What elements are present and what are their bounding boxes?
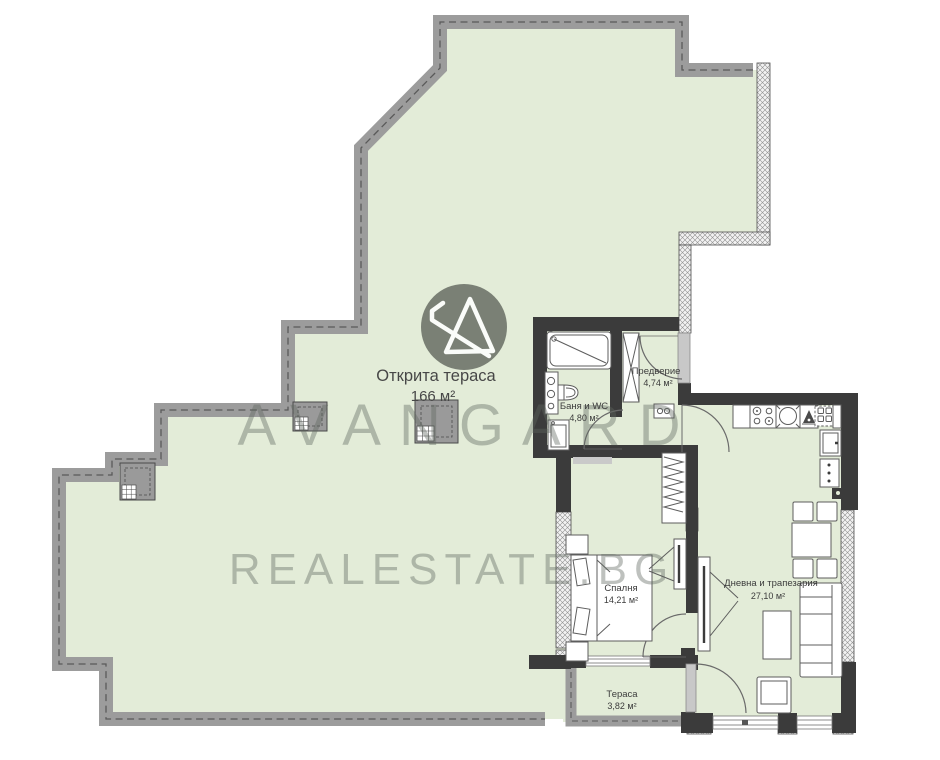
floor-plan-image: AVANGARD REALESTATE.BG Открита тераса 16… xyxy=(0,0,940,760)
living-top-wall xyxy=(679,393,858,405)
bedroom-label: Спалня xyxy=(604,583,637,594)
column-shaft xyxy=(120,463,155,500)
hallway-area: 4,74 м² xyxy=(643,378,672,388)
coffee-table-icon xyxy=(763,611,791,659)
bath-bottom-window xyxy=(573,457,612,464)
nightstand-icon xyxy=(566,642,588,661)
living-area: 27,10 м² xyxy=(751,591,785,601)
chair-icon xyxy=(817,559,837,578)
terrace-area-label: 3,82 м² xyxy=(607,701,636,711)
bathroom-area: 4,80 м² xyxy=(569,413,598,423)
terrace-label: Тераса xyxy=(606,689,638,700)
bedroom-wardrobe-icon xyxy=(662,453,686,523)
kitchen-cabinet-icon xyxy=(820,459,839,487)
chair-icon xyxy=(817,502,837,521)
chair-icon xyxy=(793,559,813,578)
brand-logo xyxy=(421,284,507,370)
bedroom-window xyxy=(586,656,650,666)
armchair-icon xyxy=(757,677,791,713)
sofa-icon xyxy=(800,583,842,677)
open-terrace-label: Открита тераса xyxy=(376,367,496,385)
floor-plan-page: AVANGARD REALESTATE.BG Открита тераса 16… xyxy=(0,0,940,760)
living-window-left xyxy=(713,716,778,729)
open-terrace-area: 166 м² xyxy=(411,388,456,405)
living-label: Дневна и трапезария xyxy=(724,578,818,589)
oven-icon xyxy=(820,430,841,456)
counter-end xyxy=(833,405,841,428)
dishwasher-icon xyxy=(815,406,833,426)
bedroom-area: 14,21 м² xyxy=(604,595,638,605)
chair-icon xyxy=(793,502,813,521)
logo-circle xyxy=(421,284,507,370)
living-window-right xyxy=(797,716,832,729)
watermark-brand-text: AVANGARD xyxy=(238,393,699,458)
hallway-label: Предверие xyxy=(632,366,681,377)
bathroom-label: Баня и WC xyxy=(560,401,608,412)
wall-unit-icon xyxy=(832,488,845,499)
bathtub-icon xyxy=(547,332,611,369)
bedroom-living-divider-wall xyxy=(686,445,698,613)
